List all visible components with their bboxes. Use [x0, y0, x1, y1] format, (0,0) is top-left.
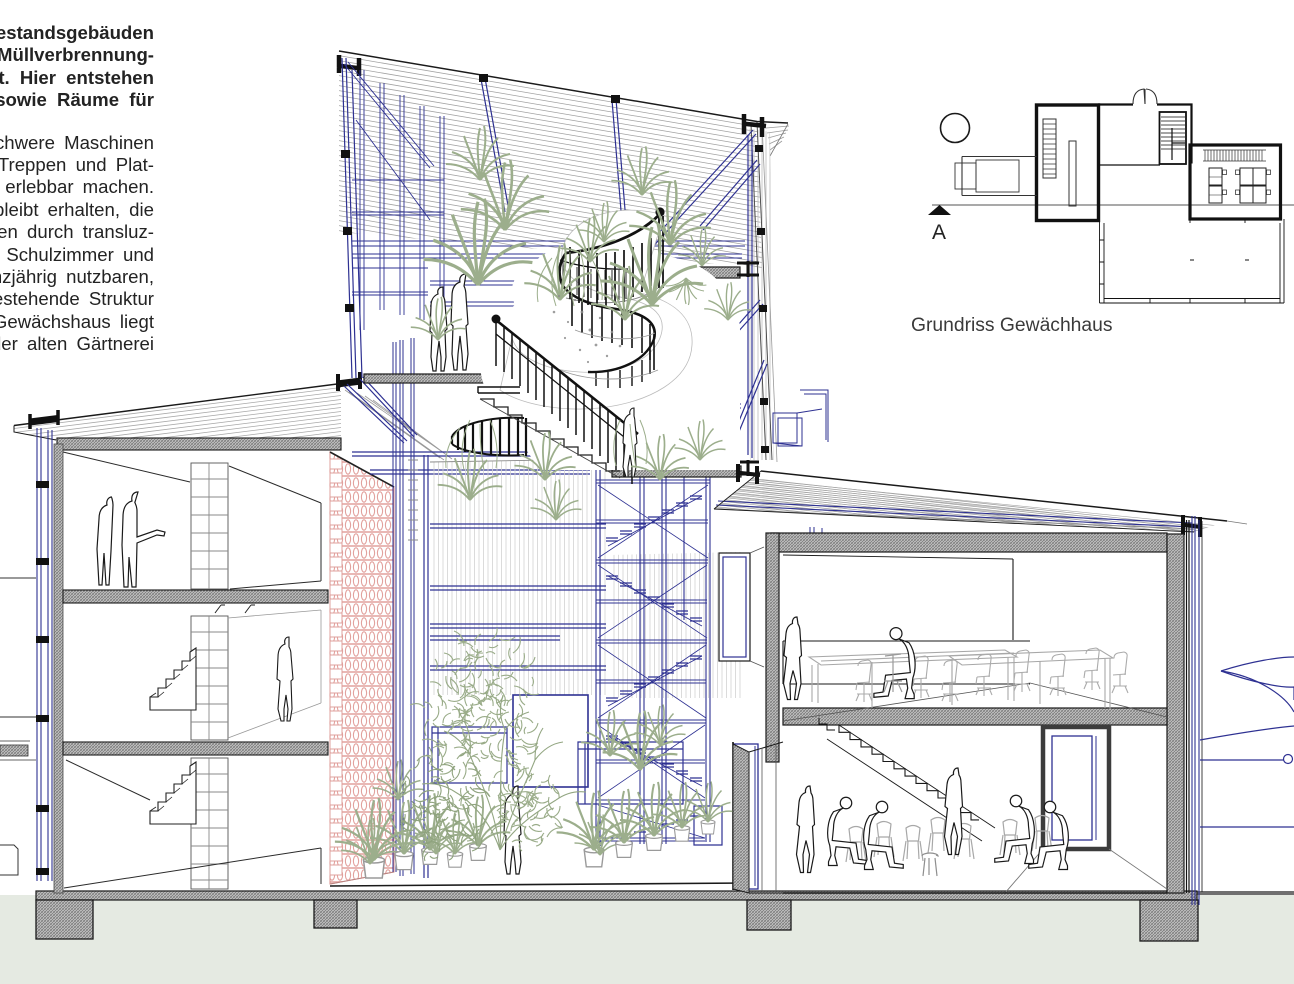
- svg-text:A: A: [932, 221, 946, 244]
